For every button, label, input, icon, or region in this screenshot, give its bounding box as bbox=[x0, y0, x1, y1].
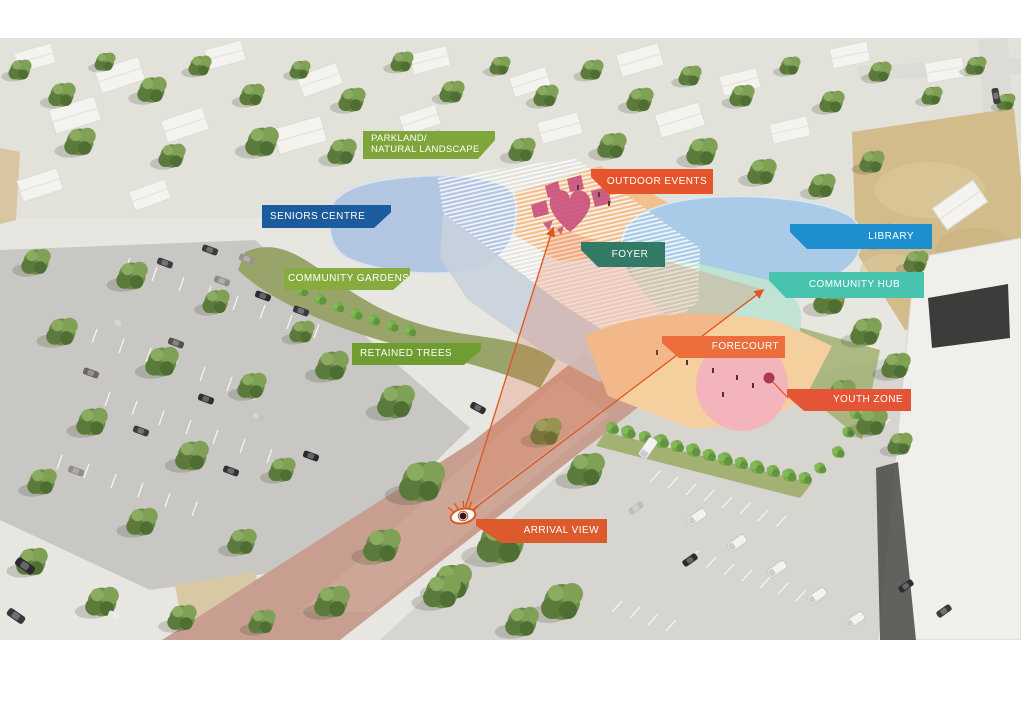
label-text: COMMUNITY HUB bbox=[809, 279, 900, 291]
label-community-gardens: COMMUNITY GARDENS bbox=[284, 268, 410, 290]
label-retained-trees: RETAINED TREES bbox=[352, 343, 481, 365]
label-forecourt: FORECOURT bbox=[662, 336, 785, 358]
label-text: COMMUNITY GARDENS bbox=[288, 273, 409, 285]
label-library: LIBRARY bbox=[790, 224, 932, 249]
label-text: PARKLAND/ NATURAL LANDSCAPE bbox=[371, 134, 480, 156]
label-outdoor-events: OUTDOOR EVENTS bbox=[591, 169, 713, 194]
label-text: ARRIVAL VIEW bbox=[524, 525, 599, 537]
label-text: SENIORS CENTRE bbox=[270, 211, 365, 223]
label-parkland-natural-landscape: PARKLAND/ NATURAL LANDSCAPE bbox=[363, 131, 495, 159]
aerial-render bbox=[0, 0, 1029, 702]
label-community-hub: COMMUNITY HUB bbox=[769, 272, 924, 298]
label-text: OUTDOOR EVENTS bbox=[607, 176, 707, 188]
label-youth-zone: YOUTH ZONE bbox=[787, 389, 911, 411]
label-text: FORECOURT bbox=[712, 341, 779, 353]
label-text: LIBRARY bbox=[868, 231, 914, 243]
label-text: FOYER bbox=[612, 249, 649, 261]
label-seniors-centre: SENIORS CENTRE bbox=[262, 205, 391, 228]
label-text: YOUTH ZONE bbox=[833, 394, 903, 406]
site-plan-figure: PARKLAND/ NATURAL LANDSCAPE SENIORS CENT… bbox=[0, 0, 1029, 702]
label-text: RETAINED TREES bbox=[360, 348, 452, 360]
